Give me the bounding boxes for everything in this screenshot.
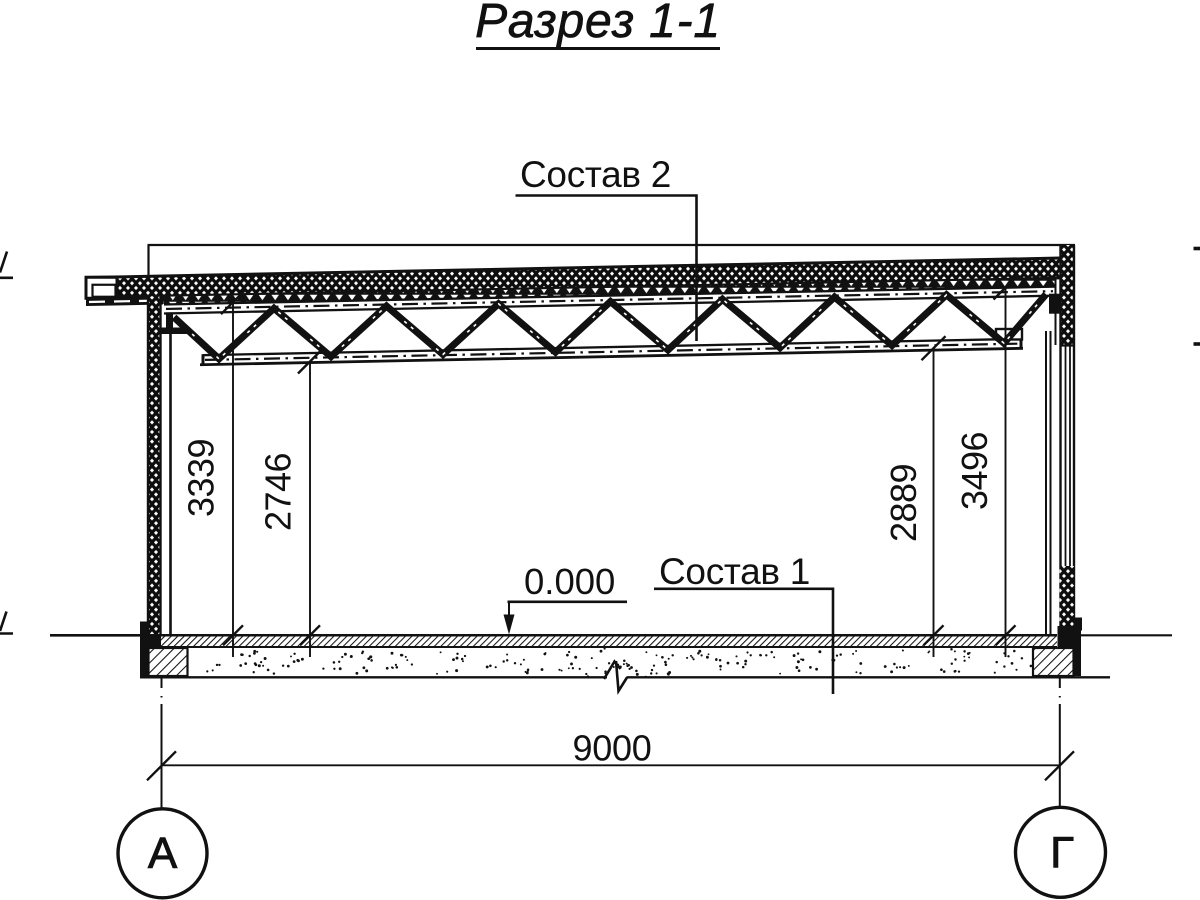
svg-text:А: А (148, 829, 178, 878)
svg-text:Состав 2: Состав 2 (520, 154, 671, 195)
svg-text:Состав 1: Состав 1 (659, 551, 810, 592)
svg-text:3496: 3496 (954, 432, 995, 510)
svg-text:2889: 2889 (883, 464, 924, 542)
svg-text:Г: Г (1050, 828, 1074, 877)
svg-text:3339: 3339 (181, 439, 222, 517)
svg-text:Разрез 1-1: Разрез 1-1 (475, 0, 721, 48)
svg-text:2746: 2746 (258, 453, 299, 531)
svg-text:0.000: 0.000 (524, 561, 615, 602)
svg-text:9000: 9000 (573, 728, 652, 769)
